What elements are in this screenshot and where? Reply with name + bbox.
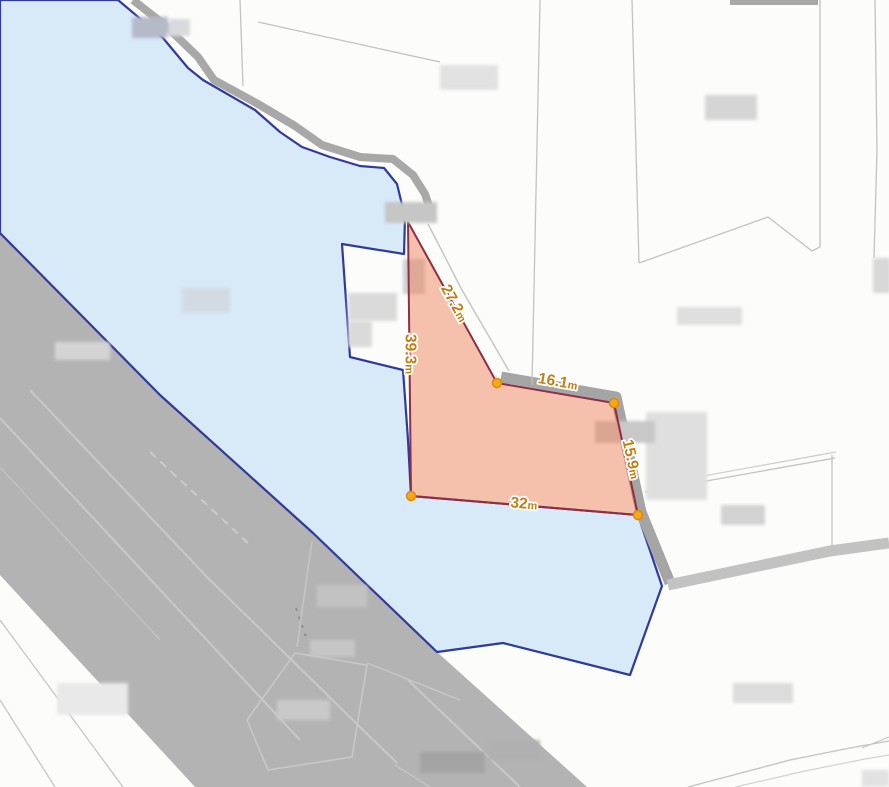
building-block [168,19,190,36]
parcel-line [639,217,820,263]
parcel-line [258,22,440,62]
parcel-line [240,0,243,86]
vertex-handle[interactable] [493,379,502,388]
building-block [385,202,437,223]
building-block [55,342,110,360]
roadside-band [668,543,889,585]
vertex-handle[interactable] [610,399,619,408]
building-block [348,293,397,321]
building-block [57,683,128,715]
parcel-line [862,737,889,748]
parcel-line [874,0,877,258]
building-block [721,505,765,525]
vertex-handle[interactable] [407,492,416,501]
vertex-handle[interactable] [634,511,643,520]
map-svg: 27.2m39.3m16.1m15.9m32m [0,0,889,787]
parcel-line [632,0,639,263]
road-edge-top [730,0,818,5]
building-block [420,752,485,773]
building-block [277,700,330,720]
building-block [132,17,168,38]
building-block [677,307,742,325]
building-block [182,288,230,313]
building-block [488,740,540,760]
building-block [317,585,367,607]
building-block [646,412,707,500]
building-block [705,95,757,120]
building-block [440,65,498,90]
building-block [873,258,889,293]
building-block [733,683,793,703]
building-block [310,640,355,657]
map-canvas[interactable]: 27.2m39.3m16.1m15.9m32m [0,0,889,787]
parcel-line [532,0,540,385]
parcel-line [0,700,55,787]
measurement-polygon[interactable] [408,222,638,515]
building-block [862,770,889,787]
road-curve-line [688,741,889,787]
building-block [348,321,372,347]
